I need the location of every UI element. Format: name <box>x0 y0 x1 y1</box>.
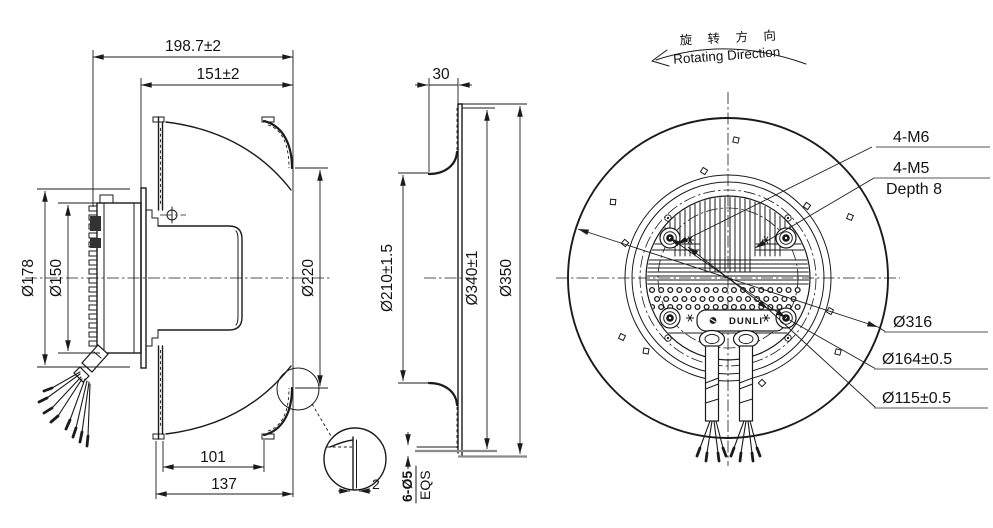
dim-mount-holes: 6-Ø5 <box>399 471 415 502</box>
inlet-bell-top <box>264 121 292 168</box>
callout-pilot-dia: Ø115±0.5 <box>882 390 951 407</box>
impeller-shroud-top <box>166 122 291 190</box>
rotating-direction-callout: 旋 转 方 向 Rotating Direction <box>652 27 806 66</box>
callout-bolts: 4-M6 <box>893 129 930 146</box>
cable-glands <box>697 331 760 462</box>
dim-inlet-ring-depth: 30 <box>432 66 450 83</box>
callout-mount-circle-dia: Ø164±0.5 <box>882 351 952 368</box>
dim-flange-dia: Ø350 <box>498 259 515 297</box>
dim-depth-total: 198.7±2 <box>165 38 221 55</box>
callout-blade-dia: Ø316 <box>893 314 932 331</box>
dim-depth-housing: 151±2 <box>197 66 240 83</box>
bell-top <box>429 152 457 174</box>
callout-tapped-depth: Depth 8 <box>886 181 942 198</box>
brand-logo-text: DUNLI <box>729 316 763 327</box>
terminal-block <box>90 238 101 248</box>
motor-cable-bundle <box>39 345 108 446</box>
bell-bottom <box>429 383 457 405</box>
rotation-label-en: Rotating Direction <box>673 44 781 66</box>
dim-hole-spacing: EQS <box>417 470 433 500</box>
dim-outlet-width: 101 <box>200 449 226 466</box>
callout-tapped-holes: 4-M5 <box>893 160 930 177</box>
middle-view-dimensions: 30 Ø210±1.5 Ø340±1 Ø350 6-Ø5 EQS <box>379 66 527 503</box>
dim-inlet-dia: Ø220 <box>300 259 317 297</box>
dim-opening-dia: Ø210±1.5 <box>379 244 396 312</box>
dim-housing-depth: 137 <box>211 476 237 493</box>
dim-sheet-thickness: 2 <box>372 476 380 492</box>
dim-motor-dia: Ø150 <box>48 259 65 297</box>
dim-bolt-circle-dia: Ø340±1 <box>464 250 481 305</box>
terminal-block <box>90 216 101 231</box>
drawing-canvas: 198.7±2 151±2 Ø178 Ø150 Ø220 101 137 <box>0 0 993 528</box>
rear-view: 旋 转 方 向 Rotating Direction <box>556 27 990 466</box>
fan-dimension-drawing: 198.7±2 151±2 Ø178 Ø150 Ø220 101 137 <box>0 0 993 528</box>
inlet-ring-view: 30 Ø210±1.5 Ø340±1 Ø350 6-Ø5 EQS <box>379 66 527 503</box>
dim-motor-flange-dia: Ø178 <box>20 259 37 297</box>
motor-top-step <box>100 195 113 203</box>
impeller-shroud-bottom <box>166 366 291 434</box>
side-section-view: 198.7±2 151±2 Ø178 Ø150 Ø220 101 137 <box>20 38 386 499</box>
